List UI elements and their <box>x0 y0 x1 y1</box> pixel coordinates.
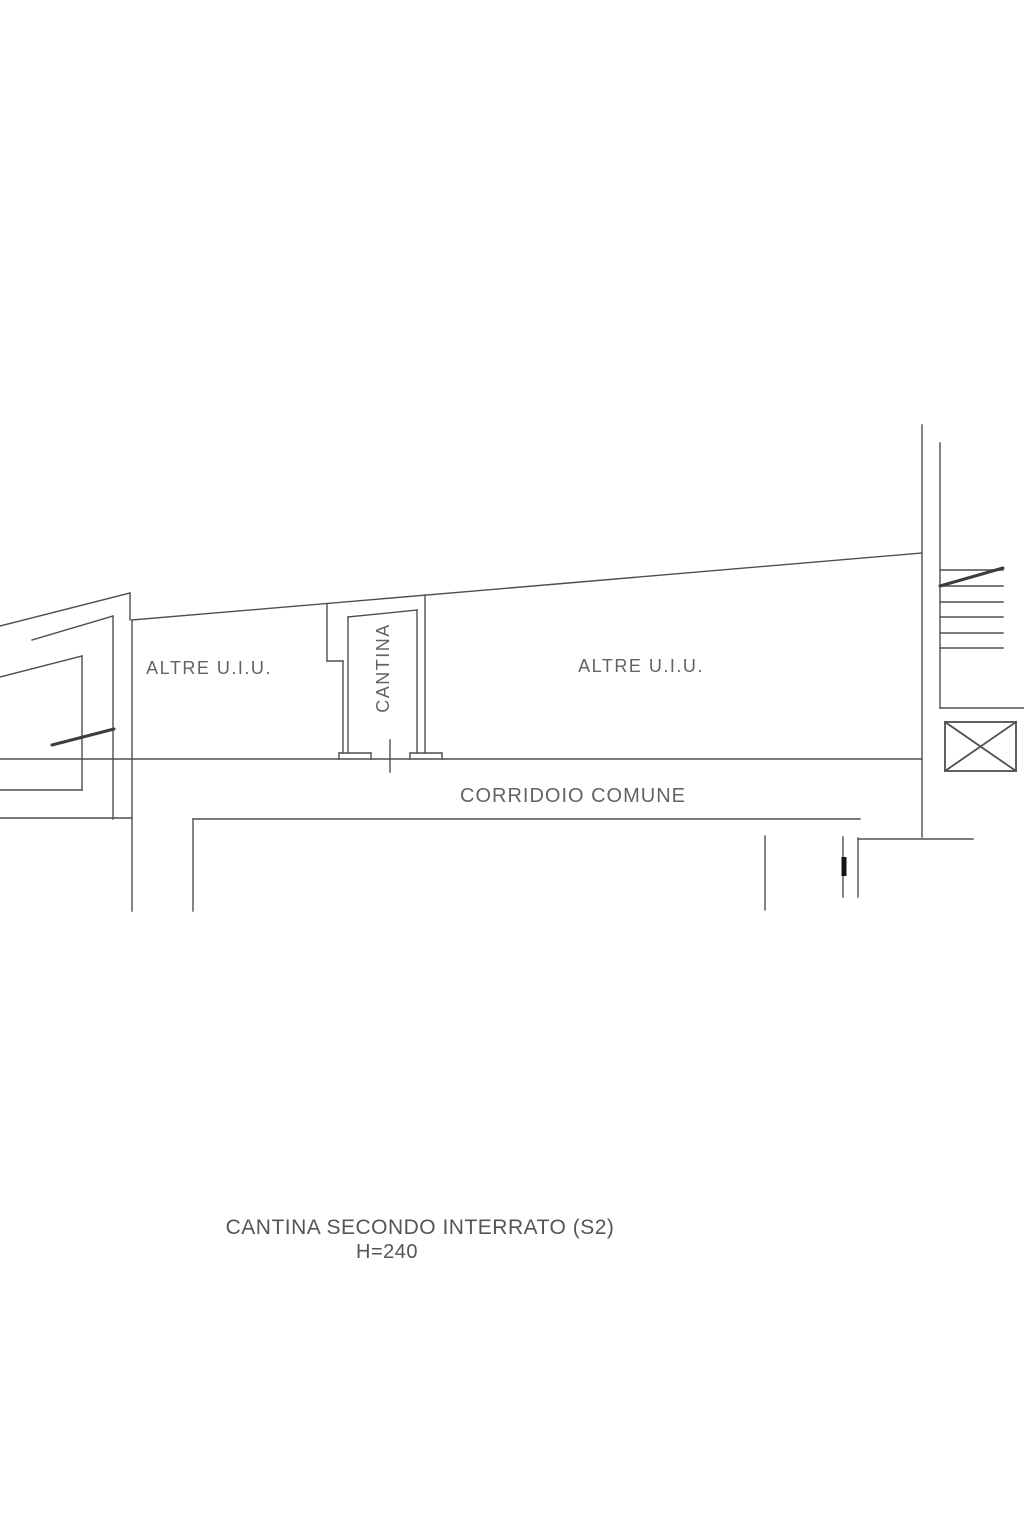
main-top-diagonal-wall <box>132 553 922 620</box>
ramp-top-diagonal <box>0 656 82 677</box>
drawing-caption: CANTINA SECONDO INTERRATO (S2) H=240 <box>226 1216 615 1263</box>
wall-diagonal-outer-left <box>0 593 130 626</box>
label-altre-uiu-left: ALTRE U.I.U. <box>146 658 272 678</box>
label-cantina-room: CANTINA <box>373 623 393 713</box>
floor-plan-drawing: ALTRE U.I.U. CANTINA ALTRE U.I.U. CORRID… <box>0 0 1024 1536</box>
elevator-shaft <box>945 722 1016 771</box>
ramp-direction-mark <box>52 729 114 745</box>
cantina-top-inner-wall <box>348 610 417 617</box>
left-ramp-walls <box>0 593 132 911</box>
caption-height: H=240 <box>356 1241 418 1263</box>
label-altre-uiu-right: ALTRE U.I.U. <box>578 656 704 676</box>
caption-title: CANTINA SECONDO INTERRATO (S2) <box>226 1216 615 1239</box>
label-corridoio-comune: CORRIDOIO COMUNE <box>460 785 686 807</box>
thick-marks <box>52 568 1003 745</box>
wall-diagonal-inner-left <box>32 616 113 640</box>
